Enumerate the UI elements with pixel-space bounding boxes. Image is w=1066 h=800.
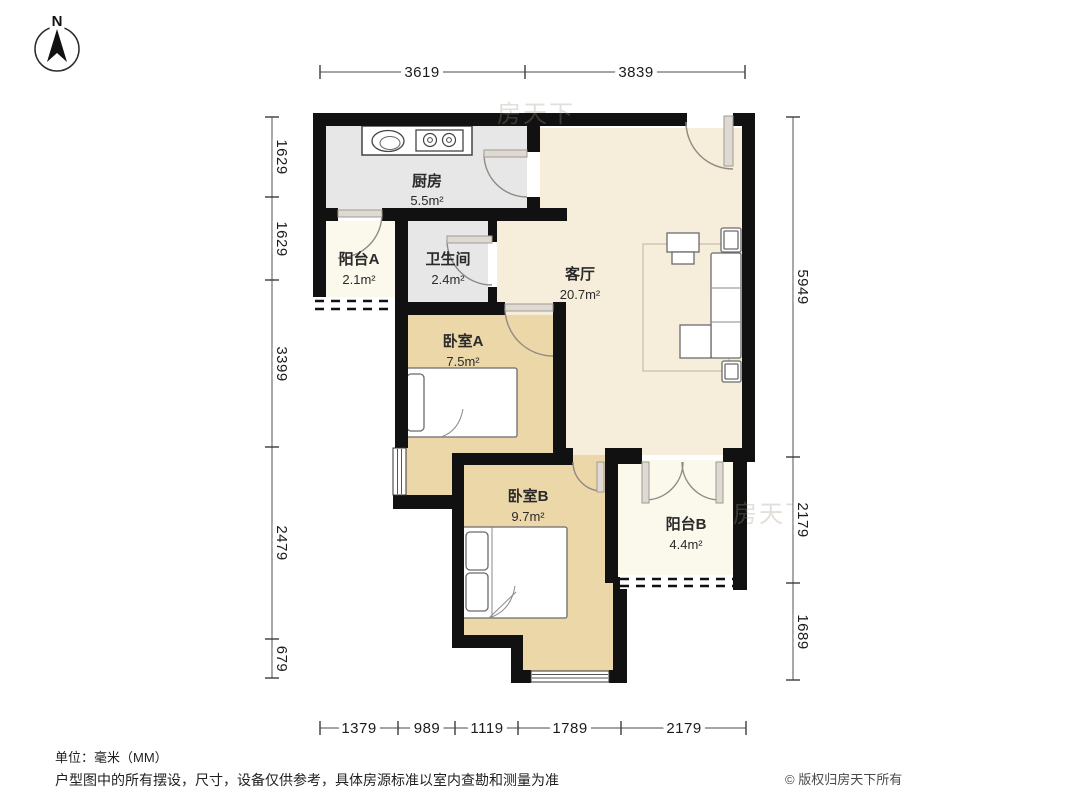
dim-bottom-3: 1119 — [470, 720, 503, 737]
window-bedroom-b — [531, 671, 609, 682]
room-area-bedroom-b: 9.7m² — [511, 509, 545, 524]
room-label-balcony-b: 阳台B — [666, 515, 707, 533]
room-label-balcony-a: 阳台A — [339, 250, 380, 268]
balcony-a-rail-bg — [313, 297, 395, 313]
dim-bottom-2: 989 — [414, 720, 441, 737]
dim-left-5: 679 — [273, 646, 290, 673]
armchair — [667, 233, 699, 252]
room-area-bedroom-a: 7.5m² — [446, 354, 480, 369]
dim-left-3: 3399 — [273, 346, 290, 381]
wall-segment — [605, 453, 618, 583]
footer-disclaimer: 户型图中的所有摆设，尺寸，设备仅供参考，具体房源标准以室内查勘和测量为准 — [55, 770, 559, 790]
floorplan-canvas: N — [0, 0, 1066, 800]
watermark-text: 房天下 — [497, 101, 575, 128]
footer-units: 单位：毫米（MM） — [55, 747, 168, 766]
dim-bottom-1: 1379 — [341, 720, 376, 737]
dimension-top: 3619 3839 — [320, 64, 745, 81]
wall-segment — [395, 208, 408, 315]
sofa — [711, 253, 741, 358]
armchair-seat — [672, 252, 694, 264]
dim-right-3: 1689 — [794, 614, 811, 649]
window-bedroom-a — [393, 448, 406, 495]
wall-segment — [511, 670, 531, 683]
dim-right-1: 5949 — [794, 269, 811, 304]
wall-segment — [395, 315, 408, 448]
room-label-kitchen: 厨房 — [412, 172, 442, 190]
dim-bottom-5: 2179 — [666, 720, 701, 737]
dimension-bottom: 1379 989 1119 1789 2179 — [320, 720, 746, 737]
wall-segment — [382, 208, 567, 221]
compass-north-label: N — [52, 13, 63, 30]
room-area-balcony-b: 4.4m² — [669, 537, 703, 552]
room-area-living: 20.7m² — [560, 287, 601, 302]
dim-bottom-4: 1789 — [552, 720, 587, 737]
room-area-balcony-a: 2.1m² — [342, 272, 376, 287]
room-label-bedroom-b: 卧室B — [508, 487, 549, 505]
wall-segment — [553, 302, 566, 315]
wall-segment — [395, 302, 505, 315]
dim-left-4: 2479 — [273, 525, 290, 560]
dim-left-2: 1629 — [273, 221, 290, 256]
wall-segment — [613, 577, 627, 683]
side-table-top — [725, 364, 738, 379]
room-label-bathroom: 卫生间 — [425, 250, 470, 268]
floorplan-page: N — [0, 0, 1066, 800]
dim-top-1: 3619 — [404, 64, 439, 81]
pillow — [466, 573, 488, 611]
footer-copyright: © 版权归房天下所有 — [785, 769, 902, 788]
dim-left-1: 1629 — [273, 139, 290, 174]
wall-segment — [527, 126, 540, 152]
dim-top-2: 3839 — [618, 64, 653, 81]
pillow — [407, 374, 424, 431]
compass: N — [35, 13, 79, 71]
sofa-chaise — [680, 325, 711, 358]
wall-segment — [452, 453, 464, 647]
wall-segment — [560, 448, 573, 462]
bed-double — [462, 527, 567, 618]
dim-right-2: 2179 — [794, 502, 811, 537]
side-table-top — [724, 231, 738, 249]
bed-single — [403, 368, 517, 437]
wall-segment — [553, 315, 566, 455]
room-label-bedroom-a: 卧室A — [443, 332, 484, 350]
room-label-living: 客厅 — [564, 265, 595, 283]
dimension-left: 1629 1629 3399 2479 679 — [265, 117, 290, 678]
wall-segment — [393, 495, 452, 509]
wall-segment — [313, 208, 338, 221]
room-area-kitchen: 5.5m² — [410, 193, 444, 208]
wall-segment — [742, 113, 755, 462]
kitchen-counter — [362, 126, 472, 155]
dimension-right: 5949 2179 1689 — [786, 117, 811, 680]
room-area-bathroom: 2.4m² — [431, 272, 465, 287]
wall-segment — [452, 453, 573, 465]
pillow — [466, 532, 488, 570]
